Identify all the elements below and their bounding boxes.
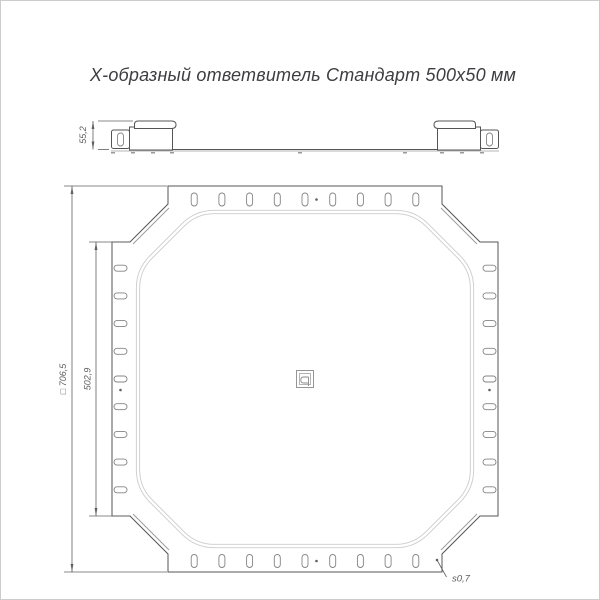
left-tab-slot — [118, 133, 124, 146]
left-block-lip — [135, 121, 177, 129]
outer-contour — [112, 186, 498, 572]
overall-width-dimension-label: □ 706,5 — [58, 363, 68, 394]
mounting-slot — [483, 459, 496, 465]
side-view — [111, 121, 499, 154]
arrowhead-up — [71, 186, 74, 194]
arrowhead-down — [95, 508, 98, 516]
flange-dot-right — [488, 389, 491, 392]
mounting-slot — [483, 404, 496, 410]
arrowhead-up — [92, 121, 95, 129]
right-block-lip — [434, 121, 476, 129]
side-height-dimension-label: 55,2 — [78, 126, 88, 144]
drawing-title: Х-образный ответвитель Стандарт 500х50 м… — [89, 65, 516, 85]
flange-dot-bottom — [315, 560, 318, 563]
mounting-slot — [114, 265, 127, 271]
mounting-slot — [483, 321, 496, 327]
mounting-slot — [385, 193, 391, 206]
mounting-slot — [114, 431, 127, 437]
mounting-slot — [330, 193, 336, 206]
mounting-slot — [274, 193, 280, 206]
left-corner-block — [130, 127, 173, 150]
mounting-slot — [302, 193, 308, 206]
edge-slot-dashes — [111, 152, 484, 154]
arrowhead-down — [92, 142, 95, 150]
flange-dot-left — [119, 389, 122, 392]
mounting-slot — [247, 555, 253, 568]
flange-dot-top — [315, 198, 318, 201]
arrowhead-down — [71, 564, 74, 572]
mounting-slot — [413, 193, 419, 206]
mounting-slot — [219, 193, 225, 206]
mounting-slot — [114, 348, 127, 354]
mounting-slot — [219, 555, 225, 568]
mounting-slot — [330, 555, 336, 568]
mounting-slot — [114, 459, 127, 465]
mounting-slot — [114, 293, 127, 299]
arrowhead-up — [95, 242, 98, 250]
mounting-slot — [114, 321, 127, 327]
flange-width-dimension-label: 502,9 — [83, 368, 93, 391]
mounting-slot — [483, 293, 496, 299]
mounting-slot — [357, 555, 363, 568]
mounting-slot — [114, 404, 127, 410]
mounting-slot — [274, 555, 280, 568]
technical-drawing: Х-образный ответвитель Стандарт 500х50 м… — [0, 0, 600, 600]
plan-view — [112, 186, 498, 572]
mounting-slot — [413, 555, 419, 568]
sheet-thickness-label: s0,7 — [452, 574, 471, 585]
mounting-slot — [247, 193, 253, 206]
mounting-slot — [302, 555, 308, 568]
mounting-slot — [191, 555, 197, 568]
mounting-slot — [191, 193, 197, 206]
mounting-slot — [483, 487, 496, 493]
right-tab-slot — [487, 133, 493, 146]
mounting-slot — [357, 193, 363, 206]
mounting-slot — [483, 376, 496, 382]
mounting-slot — [483, 265, 496, 271]
mounting-slot — [114, 487, 127, 493]
mounting-slot — [483, 348, 496, 354]
right-corner-block — [438, 127, 481, 150]
mounting-slot — [483, 431, 496, 437]
mounting-slot — [385, 555, 391, 568]
mounting-slot — [114, 376, 127, 382]
